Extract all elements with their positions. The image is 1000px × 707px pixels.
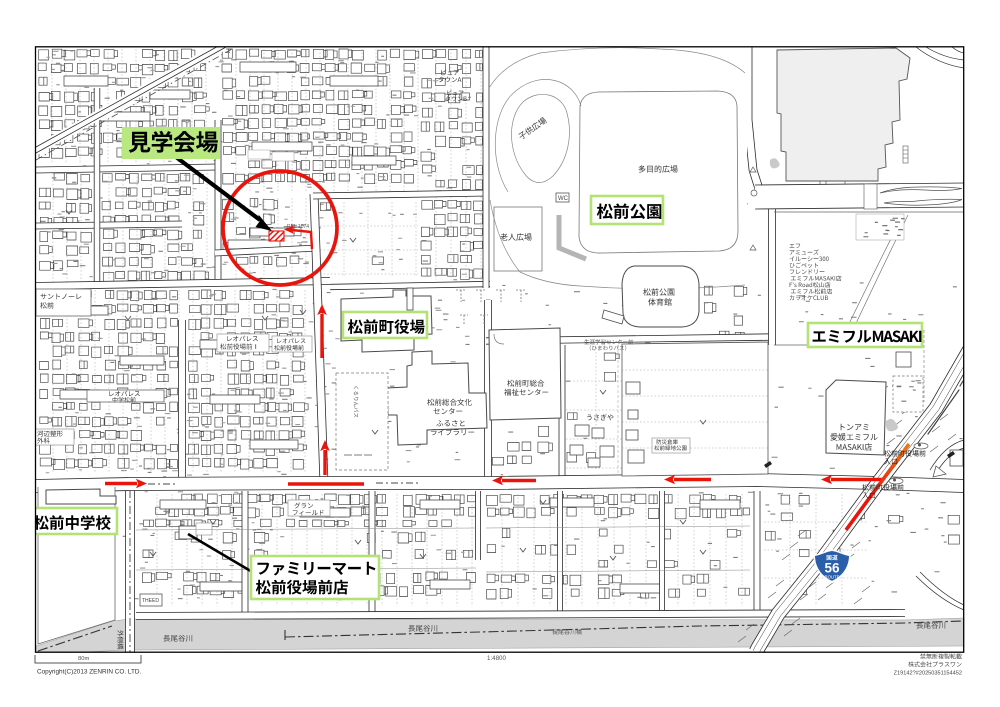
svg-text:WC: WC [558,196,569,202]
svg-text:THEED: THEED [142,598,159,604]
svg-text:Z19142?#20250351154452: Z19142?#20250351154452 [894,671,962,677]
svg-text:ROUTE: ROUTE [824,575,839,580]
svg-text:56: 56 [824,561,840,576]
svg-text:1:4800: 1:4800 [487,655,506,662]
svg-text:80m: 80m [78,656,89,662]
svg-text:Copyright(C)2013 ZENRIN CO. LT: Copyright(C)2013 ZENRIN CO. LTD. [37,669,142,676]
